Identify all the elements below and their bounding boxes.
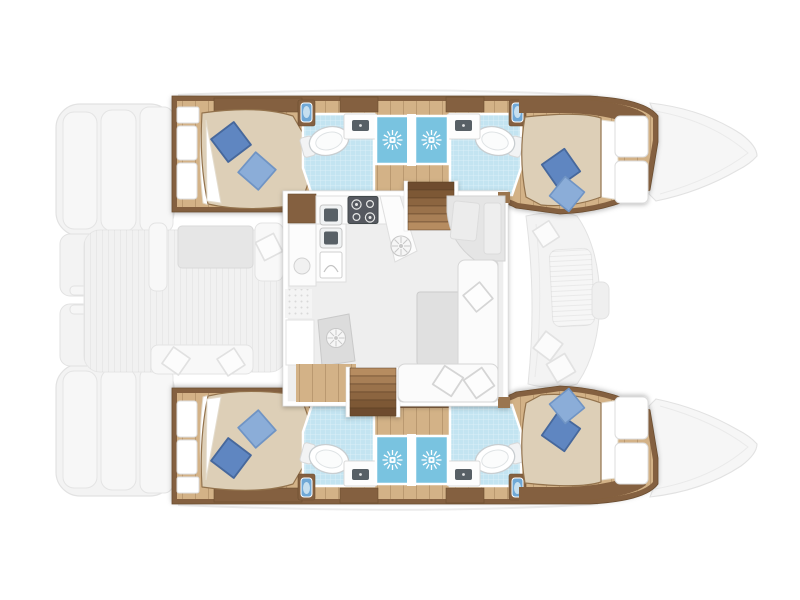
headboard-shelf (177, 107, 199, 123)
module-vent-icon (327, 329, 346, 348)
cockpit-table (178, 226, 253, 268)
bow-port (649, 103, 757, 201)
mattress (615, 161, 648, 203)
deck-edge-line (178, 90, 598, 96)
floor-plan-canvas (0, 0, 800, 600)
saloon (283, 181, 510, 417)
shower-partition (407, 114, 416, 166)
forward-cabin (519, 99, 648, 213)
swim-step (101, 110, 136, 231)
foredeck-lounge (526, 213, 609, 388)
catamaran-floor-plan (0, 0, 800, 600)
stairs-starboard-hull (346, 367, 400, 417)
lounge-cushion (549, 248, 595, 327)
lounge-table (592, 282, 609, 319)
deck-edge-line (178, 504, 598, 510)
cockpit-bench (149, 223, 167, 291)
cockpit-door (286, 320, 314, 365)
swim-step (140, 107, 173, 232)
bathroom-cabinet (340, 97, 378, 112)
headboard-shelf (177, 126, 197, 160)
peninsula-vent-icon (391, 236, 411, 256)
aft-cockpit (84, 223, 287, 379)
mattress (615, 116, 648, 157)
vanity-sink (298, 100, 315, 126)
swim-step (63, 112, 97, 229)
wall-end-cap (498, 397, 510, 408)
saloon-table (417, 292, 462, 365)
bow-starboard (649, 399, 757, 497)
galley-cabinet (288, 194, 316, 223)
round-sink (294, 258, 310, 274)
galley-counter (289, 224, 316, 286)
headboard-shelf (177, 163, 197, 199)
stair-treads (350, 368, 396, 416)
